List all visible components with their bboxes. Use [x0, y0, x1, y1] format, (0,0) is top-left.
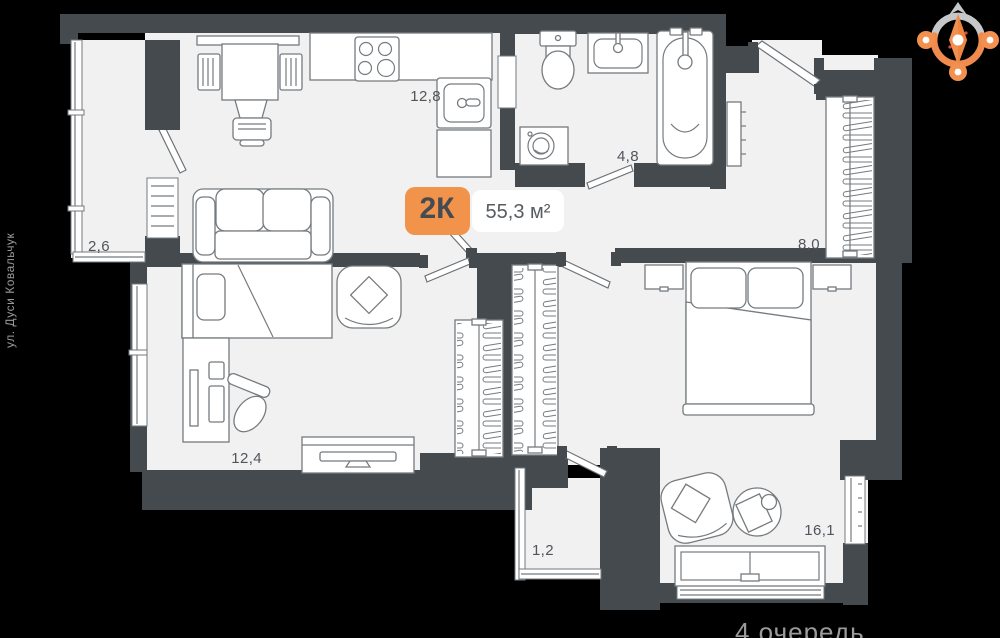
vanity-sink [588, 33, 648, 73]
corridor-wardrobe-right [512, 264, 558, 455]
label-balcony-left: 2,6 [88, 238, 110, 255]
bedroom-bottom-window [677, 585, 824, 599]
street-label: ул. Дуси Ковальчук [3, 233, 17, 348]
kitchen-counter [310, 33, 492, 80]
type-badge-text: 2К [420, 192, 456, 225]
washing-machine [520, 127, 568, 165]
balcony-door-window-unit [147, 178, 178, 238]
side-table [733, 488, 781, 536]
label-hallway: 8,0 [798, 236, 820, 253]
fridge [437, 130, 491, 177]
label-bedroom-small: 12,4 [231, 450, 262, 467]
built-in-closet [675, 546, 825, 586]
entry-wardrobe [826, 96, 874, 258]
vent-shaft [498, 56, 516, 108]
single-bed [182, 264, 332, 338]
apartment-badge: 2К 55,3 м² [405, 187, 564, 235]
bedroom-right-window [845, 476, 865, 544]
double-bed [683, 262, 814, 415]
label-bathroom: 4,8 [617, 148, 639, 165]
sofa [193, 189, 333, 262]
kitchen-sink [437, 78, 491, 128]
total-area-text: 55,3 м² [486, 201, 551, 223]
label-balcony-bottom: 1,2 [532, 542, 554, 559]
armchair-small [337, 266, 401, 328]
label-kitchen-living: 12,8 [410, 88, 441, 105]
room-small-window [129, 284, 147, 426]
bathtub [657, 28, 713, 165]
floor-plan-image: 12,8 2,6 4,8 8,0 12,4 16,1 1,2 2К 55,3 м… [0, 0, 1000, 638]
nightstand-left [645, 265, 683, 291]
toilet [540, 31, 576, 89]
tv-stand [302, 437, 414, 473]
stove [355, 37, 399, 81]
corridor-wardrobe-left [455, 319, 503, 457]
floor-plan: 12,8 2,6 4,8 8,0 12,4 16,1 1,2 2К 55,3 м… [0, 0, 1000, 638]
label-bedroom-master: 16,1 [804, 522, 835, 539]
nightstand-right [813, 265, 851, 291]
phase-label: 4 очередь [735, 617, 865, 638]
desk [183, 338, 229, 442]
